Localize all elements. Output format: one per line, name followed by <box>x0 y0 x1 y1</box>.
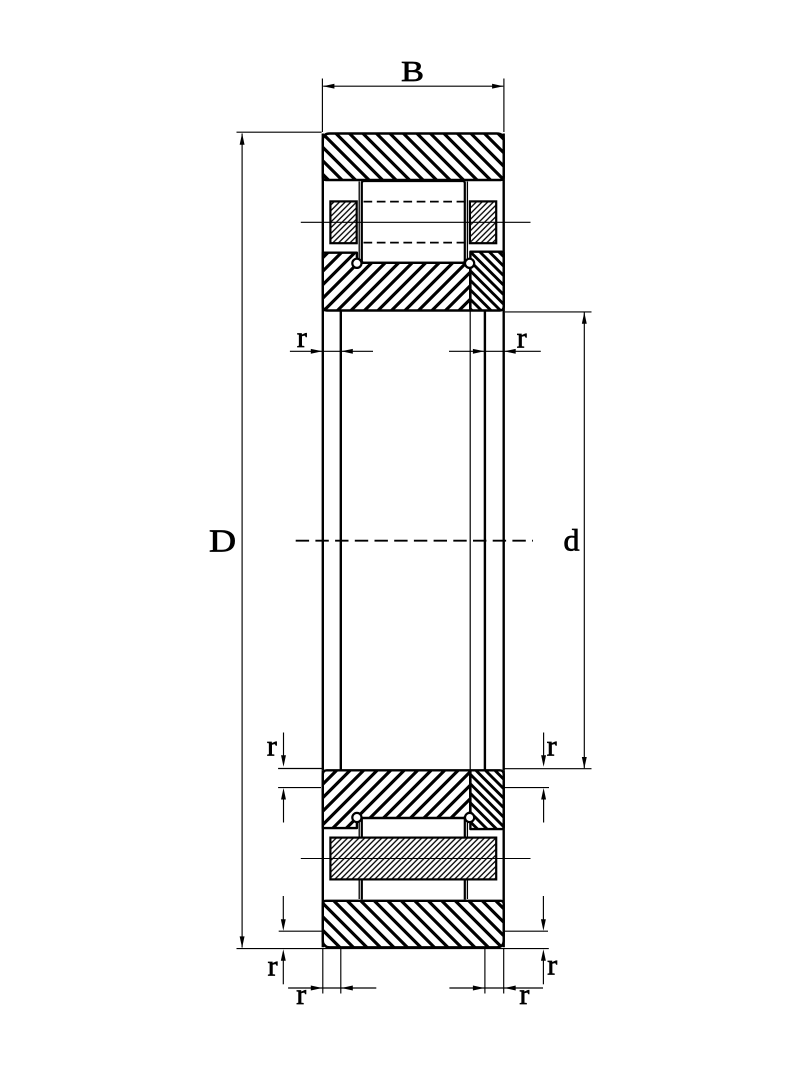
svg-text:r: r <box>517 322 527 355</box>
svg-text:r: r <box>297 321 307 354</box>
svg-text:r: r <box>268 950 278 983</box>
svg-text:r: r <box>267 730 277 763</box>
svg-text:D: D <box>209 524 236 559</box>
svg-text:r: r <box>519 978 529 1011</box>
svg-text:r: r <box>547 730 557 763</box>
svg-text:B: B <box>401 56 424 87</box>
svg-text:r: r <box>296 978 306 1011</box>
svg-text:d: d <box>563 523 579 557</box>
svg-text:r: r <box>547 949 557 982</box>
